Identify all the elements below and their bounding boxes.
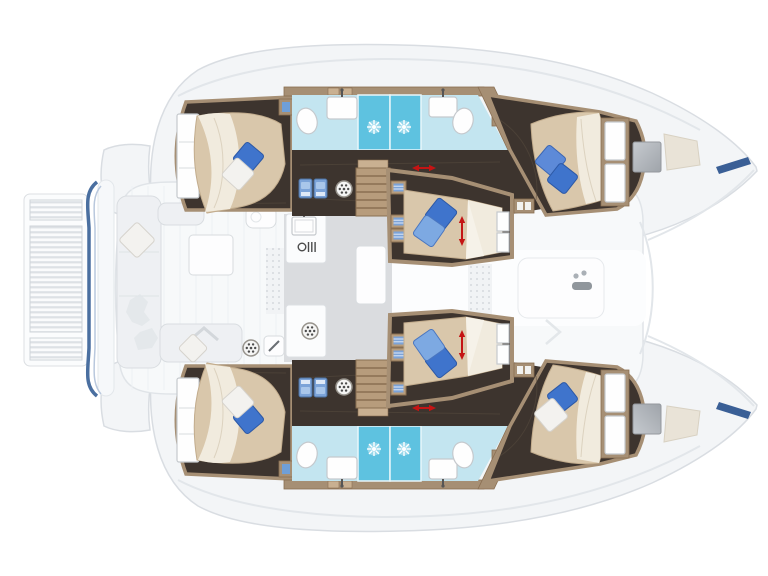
catamaran-floor-plan [0, 0, 768, 576]
slat-panel [30, 338, 82, 360]
slat-panel [30, 200, 82, 220]
cockpit-table [189, 235, 233, 275]
locker-pane [525, 202, 531, 210]
side-track-texture [266, 248, 284, 314]
catamaran-floor-plan-canvas [0, 0, 768, 576]
headboard-panel [497, 233, 509, 252]
salon-island [356, 246, 386, 304]
aft-cabin [176, 97, 294, 213]
stair-landing [358, 160, 388, 168]
cockpit-dial-icon [243, 340, 259, 356]
washbasin [429, 97, 457, 117]
stern-platform [24, 182, 101, 396]
salon-dial-icon [302, 323, 318, 339]
wardrobe-door [605, 122, 625, 160]
transom-step-band [98, 180, 114, 396]
headboard-panel [497, 212, 509, 231]
vent-dial-icon [336, 181, 352, 197]
slat-panel [30, 226, 82, 332]
washbasin [327, 97, 357, 119]
locker-content [282, 102, 290, 112]
vanity-locker [328, 88, 339, 95]
locker-pane [517, 202, 523, 210]
wardrobe-door [605, 164, 625, 202]
deck-hatch [633, 142, 661, 172]
